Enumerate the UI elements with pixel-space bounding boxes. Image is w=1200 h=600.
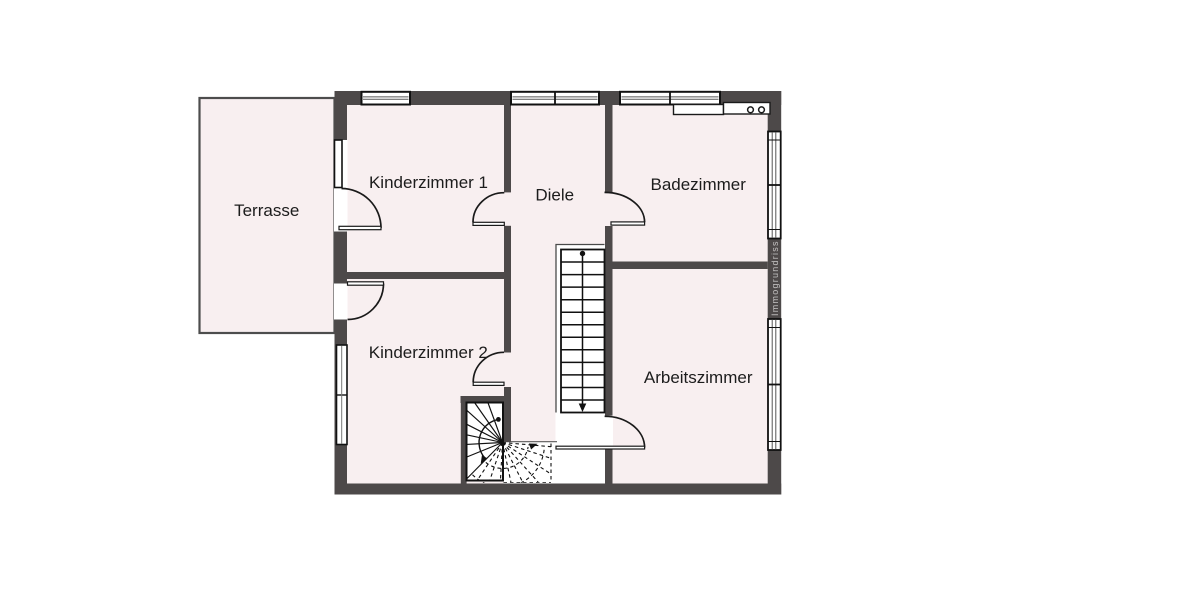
svg-text:Diele: Diele: [535, 185, 574, 204]
svg-text:Kinderzimmer 2: Kinderzimmer 2: [369, 343, 488, 362]
svg-text:Immogrundriss: Immogrundriss: [770, 240, 780, 316]
svg-text:Terrasse: Terrasse: [234, 201, 299, 220]
svg-text:Badezimmer: Badezimmer: [650, 175, 746, 194]
svg-text:Kinderzimmer 1: Kinderzimmer 1: [369, 173, 488, 192]
svg-text:Arbeitszimmer: Arbeitszimmer: [644, 368, 753, 387]
